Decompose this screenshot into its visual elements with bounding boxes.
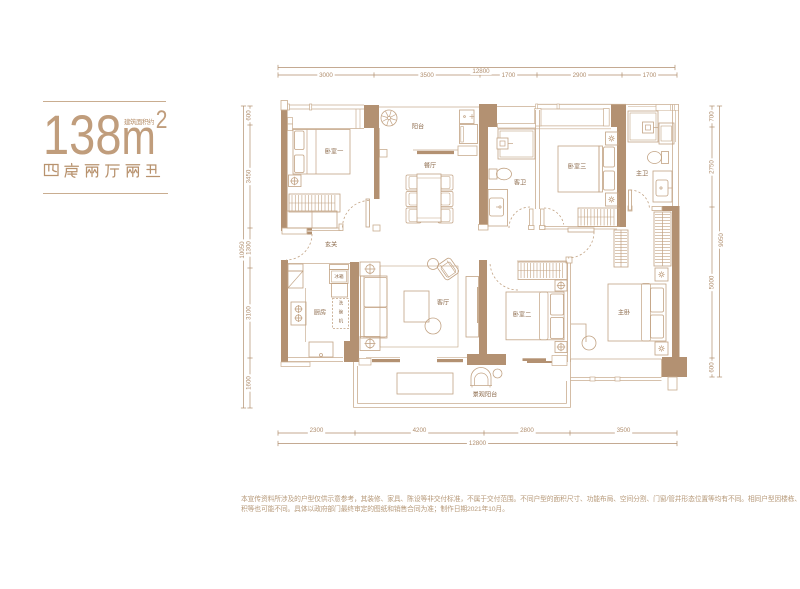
- svg-text:3500: 3500: [617, 427, 631, 434]
- svg-text:1700: 1700: [502, 72, 516, 79]
- svg-text:餐厅: 餐厅: [424, 162, 436, 170]
- svg-text:2300: 2300: [310, 427, 324, 434]
- svg-text:3450: 3450: [246, 169, 253, 183]
- svg-text:4200: 4200: [413, 427, 427, 434]
- svg-text:1600: 1600: [246, 376, 253, 390]
- svg-text:3000: 3000: [319, 72, 333, 79]
- svg-text:1300: 1300: [246, 241, 253, 255]
- svg-text:主卧: 主卧: [618, 309, 630, 317]
- svg-text:2800: 2800: [520, 427, 534, 434]
- svg-text:600: 600: [709, 362, 716, 373]
- svg-text:冰箱: 冰箱: [334, 273, 344, 280]
- svg-text:卧室一: 卧室一: [325, 148, 344, 156]
- svg-text:3500: 3500: [420, 72, 434, 79]
- svg-text:700: 700: [709, 111, 716, 122]
- svg-text:10050: 10050: [239, 241, 246, 259]
- svg-text:600: 600: [246, 110, 253, 121]
- svg-text:卧室二: 卧室二: [513, 311, 532, 319]
- svg-text:2750: 2750: [709, 160, 716, 174]
- svg-text:12800: 12800: [472, 68, 490, 75]
- svg-text:2900: 2900: [573, 72, 587, 79]
- svg-text:客卫: 客卫: [514, 179, 526, 187]
- svg-text:碗: 碗: [339, 309, 344, 316]
- svg-text:景观阳台: 景观阳台: [473, 391, 498, 399]
- svg-text:12800: 12800: [469, 440, 487, 447]
- svg-text:1700: 1700: [643, 72, 657, 79]
- svg-text:卧室三: 卧室三: [568, 163, 587, 171]
- svg-text:客厅: 客厅: [437, 299, 449, 307]
- svg-text:9050: 9050: [718, 233, 725, 247]
- svg-text:主卫: 主卫: [636, 170, 648, 178]
- svg-text:玄关: 玄关: [325, 241, 337, 249]
- svg-text:3100: 3100: [246, 306, 253, 320]
- svg-text:厨房: 厨房: [314, 309, 326, 317]
- svg-text:阳台: 阳台: [412, 123, 424, 131]
- svg-text:5000: 5000: [709, 275, 716, 289]
- svg-text:洗: 洗: [339, 300, 344, 307]
- svg-text:机: 机: [339, 318, 344, 325]
